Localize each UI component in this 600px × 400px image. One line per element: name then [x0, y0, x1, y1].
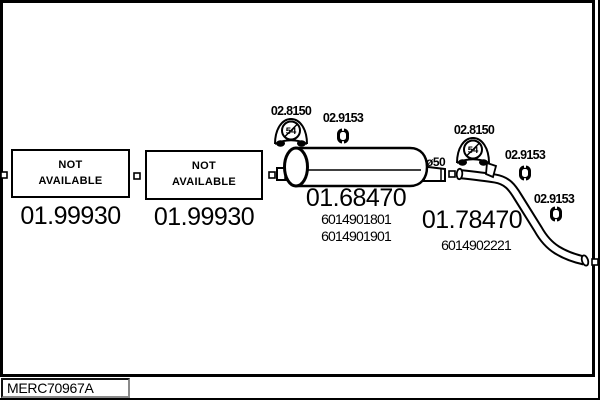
oem-number: 6014901801	[316, 212, 396, 226]
mounting-bracket-icon: 54	[275, 119, 307, 147]
rubber-hanger-icon	[550, 207, 562, 222]
oem-number: 6014901901	[316, 229, 396, 243]
tailpipe-inlet-opening	[456, 169, 462, 180]
not-available-label: NOT AVAILABLE	[172, 159, 236, 191]
connector-square	[269, 172, 275, 178]
part-number-0199930[interactable]: 01.99930	[144, 205, 264, 230]
catalog-diagram: 54 54	[0, 0, 600, 400]
part-number-029153[interactable]: 02.9153	[533, 193, 575, 206]
oem-number: 6014902221	[436, 238, 516, 252]
not-available-label: NOT AVAILABLE	[38, 158, 102, 190]
drawing-code: MERC70967A	[7, 380, 94, 396]
connector-square	[592, 259, 598, 265]
pipe-diameter-label: ø50	[426, 156, 445, 168]
muffler-body	[296, 148, 427, 186]
hanger-tab-marker	[486, 163, 496, 177]
bracket-badge: 54	[468, 145, 479, 156]
mounting-bracket-icon: 54	[457, 138, 489, 166]
connector-square	[1, 172, 7, 178]
part-number-029153[interactable]: 02.9153	[322, 112, 364, 125]
part-number-028150[interactable]: 02.8150	[270, 105, 312, 118]
part-number-0199930[interactable]: 01.99930	[10, 204, 131, 229]
connector-square	[134, 173, 140, 179]
drawing-code-box: MERC70967A	[1, 378, 130, 398]
muffler-drawing	[277, 148, 445, 186]
connector-square	[449, 171, 455, 177]
rubber-hanger-icon	[337, 129, 349, 144]
rubber-hanger-icon	[519, 166, 531, 181]
muffler-end-cap	[285, 148, 308, 186]
part-number-029153[interactable]: 02.9153	[504, 149, 546, 162]
part-number-0168470[interactable]: 01.68470	[296, 186, 416, 211]
bracket-badge: 54	[286, 126, 297, 137]
not-available-box: NOT AVAILABLE	[11, 149, 130, 198]
part-number-0178470[interactable]: 01.78470	[412, 208, 532, 233]
part-number-028150[interactable]: 02.8150	[453, 124, 495, 137]
not-available-box: NOT AVAILABLE	[145, 150, 263, 200]
